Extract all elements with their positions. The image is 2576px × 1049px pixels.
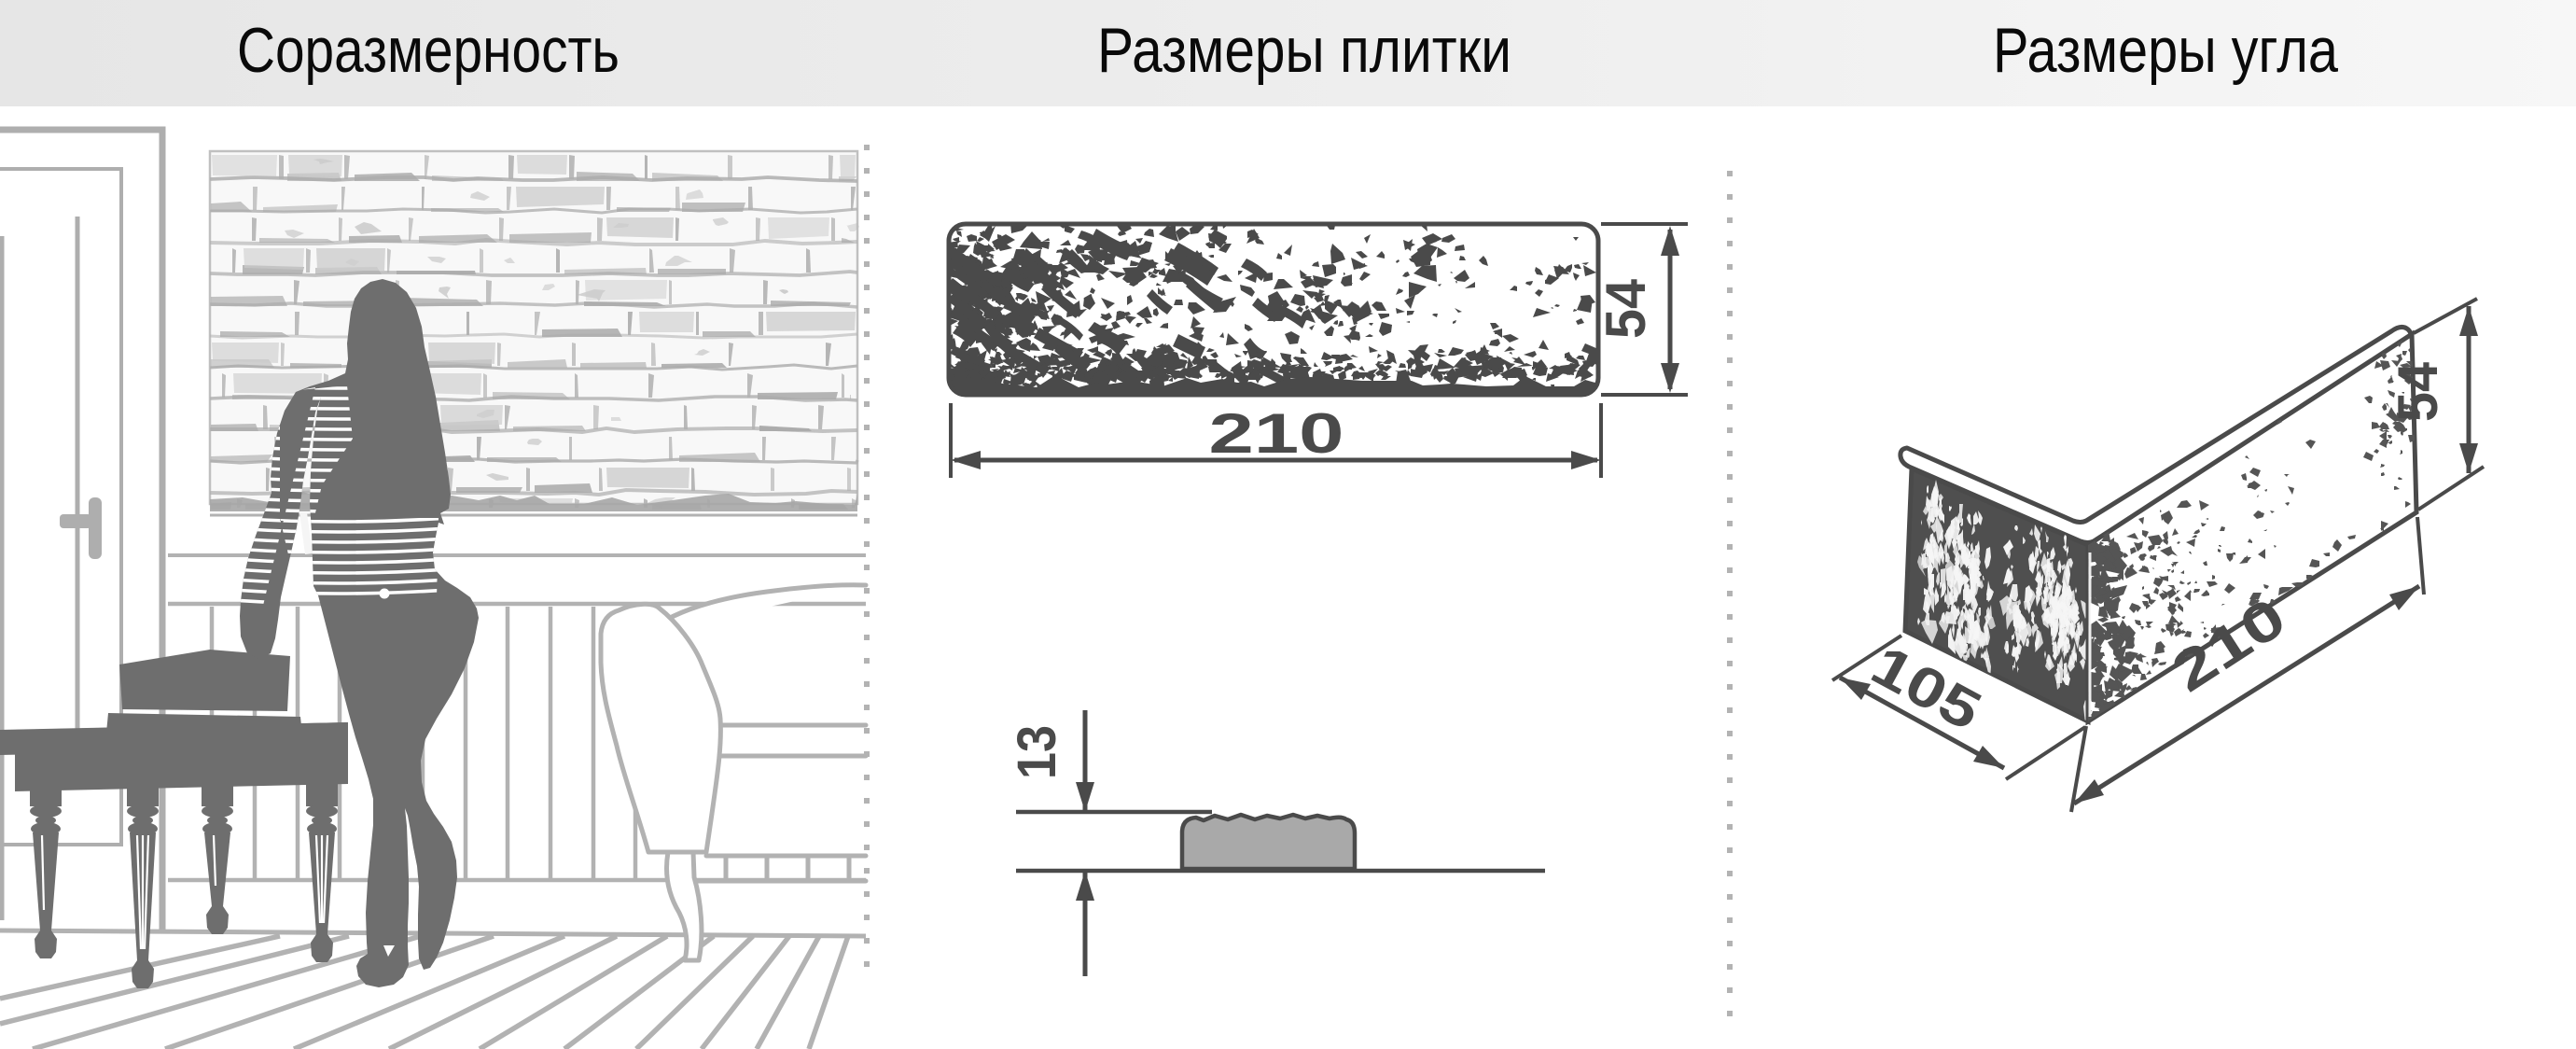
svg-text:Размеры угла: Размеры угла <box>1993 15 2338 86</box>
svg-text:13: 13 <box>1007 725 1067 779</box>
svg-text:54: 54 <box>2387 361 2449 422</box>
svg-text:54: 54 <box>1594 278 1657 339</box>
svg-text:210: 210 <box>1209 402 1344 465</box>
svg-text:Размеры плитки: Размеры плитки <box>1097 15 1511 86</box>
svg-text:Соразмерность: Соразмерность <box>237 15 620 86</box>
